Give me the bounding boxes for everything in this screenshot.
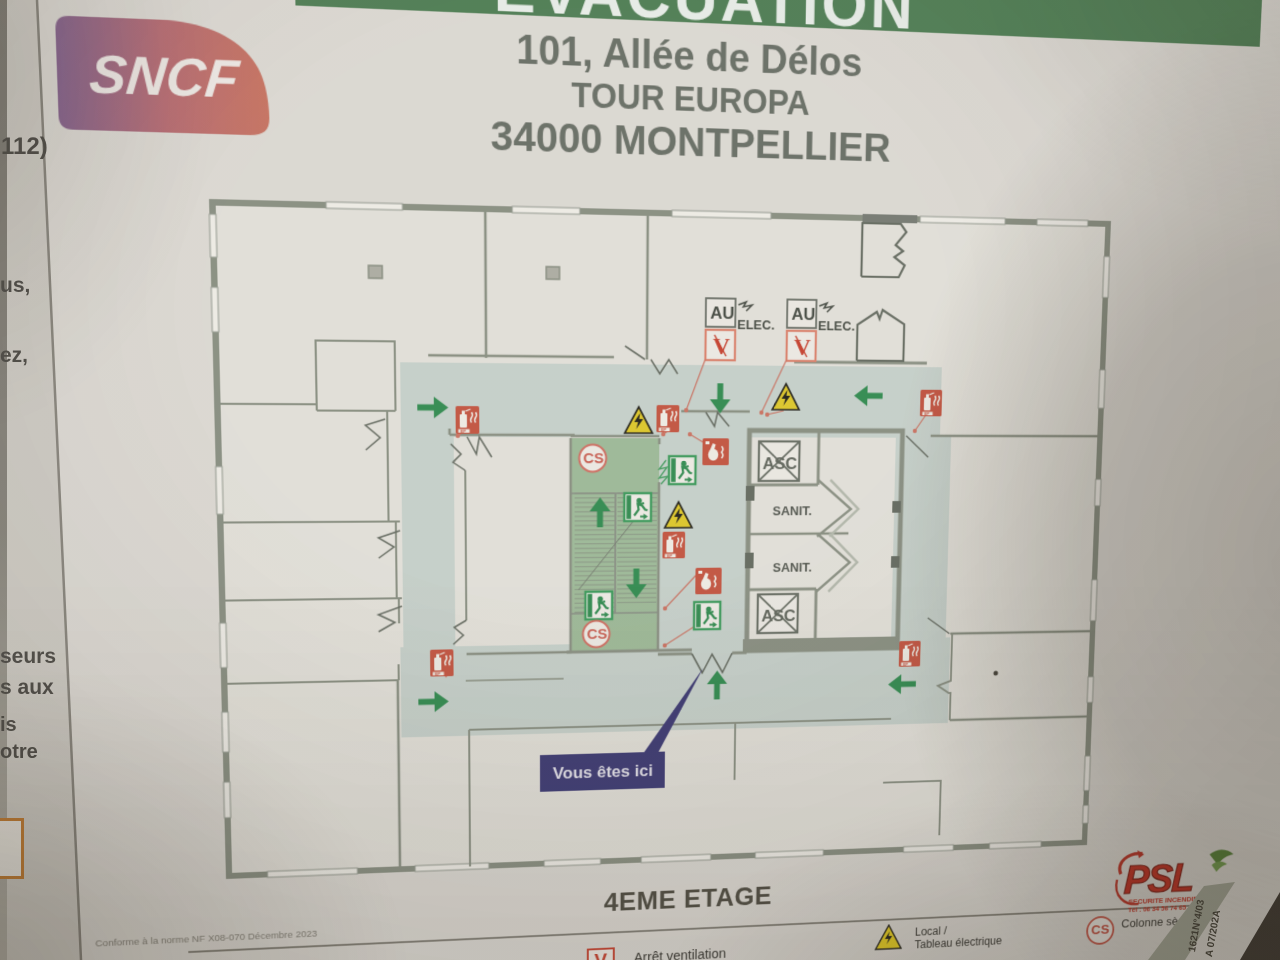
svg-text:Vous êtes ici: Vous êtes ici (553, 762, 653, 783)
svg-text:SANIT.: SANIT. (772, 504, 812, 519)
svg-text:ELEC.: ELEC. (737, 318, 775, 333)
svg-text:AU: AU (710, 304, 734, 324)
svg-text:ELEC.: ELEC. (818, 319, 855, 334)
svg-text:ASC: ASC (761, 607, 795, 626)
svg-text:SANIT.: SANIT. (773, 561, 812, 576)
svg-text:ASC: ASC (763, 454, 798, 473)
svg-text:AU: AU (791, 305, 815, 325)
